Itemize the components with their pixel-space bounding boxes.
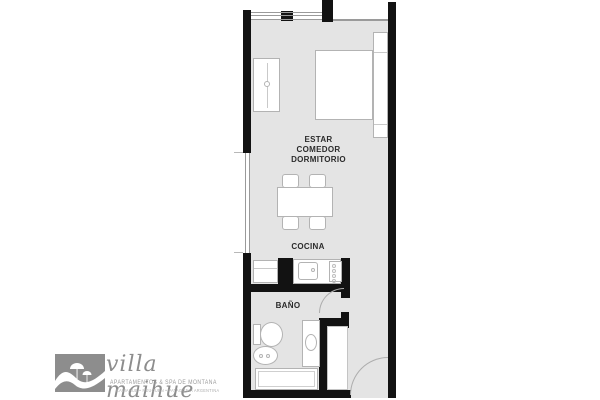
faucet-icon [311, 268, 315, 272]
wardrobe-icon [253, 58, 280, 112]
kitchen-sink-icon [298, 262, 318, 280]
bidet-tap [259, 354, 263, 358]
chair-icon [282, 216, 299, 230]
wall-kitchen-left-stub [278, 258, 293, 284]
dimension-tick [234, 252, 243, 253]
wall-left-lower [243, 253, 251, 398]
living-label-line: ESTAR [270, 135, 367, 145]
floorplan-canvas: ESTAR COMEDOR DORMITORIO COCINA BAÑO vil… [0, 0, 600, 400]
bidet-tap [266, 354, 270, 358]
bed-icon [315, 50, 373, 120]
chair-icon [309, 216, 326, 230]
bathtub-rim [258, 371, 315, 387]
chair-icon [309, 174, 326, 188]
logo-tagline-text: APARTAMENTOS & SPA DE MONTAÑA [110, 380, 217, 386]
bidet-icon [253, 346, 278, 365]
wall-right [388, 2, 396, 398]
burner-icon [332, 264, 336, 268]
stove-icon [329, 261, 342, 282]
burner-icon [332, 274, 336, 278]
window-top-line-icon [251, 12, 322, 13]
window-right-top-icon [333, 19, 388, 21]
entry-closet-icon [327, 326, 348, 390]
living-room-label: ESTAR COMEDOR DORMITORIO [270, 135, 367, 165]
dining-table-icon [277, 187, 333, 217]
wall-bath-vertical [319, 318, 327, 398]
window-top-line-icon [251, 19, 322, 20]
wardrobe-knob [264, 81, 270, 87]
chair-icon [282, 174, 299, 188]
dimension-tick [234, 152, 243, 153]
burner-icon [332, 279, 336, 283]
wall-bottom [243, 390, 351, 398]
logo-location-text: CAVIAHUE • NEUQUEN • PATAGONIA ARGENTINA [116, 388, 219, 393]
bedside-shelf-icon [373, 32, 388, 138]
wall-left-upper [243, 10, 251, 153]
window-left-line-icon [249, 153, 250, 253]
cabinet-divider [254, 268, 277, 269]
fridge-cabinet-icon [253, 260, 278, 283]
logo: villa maihue APARTAMENTOS & SPA DE MONTA… [55, 352, 235, 396]
living-label-line: COMEDOR [270, 145, 367, 155]
bathtub-icon [255, 368, 318, 390]
shelf-divider [374, 52, 387, 53]
living-label-line: DORMITORIO [270, 155, 367, 165]
wall-top-stub [322, 0, 333, 22]
toilet-bowl-icon [260, 322, 283, 347]
window-left-line-icon [245, 153, 246, 253]
burner-icon [332, 269, 336, 273]
kitchen-label: COCINA [270, 242, 346, 252]
bathroom-label: BAÑO [260, 301, 316, 311]
shelf-divider [374, 124, 387, 125]
window-top-line-icon [251, 15, 322, 16]
vanity-basin-icon [305, 334, 317, 351]
logo-mark-icon [55, 354, 105, 392]
